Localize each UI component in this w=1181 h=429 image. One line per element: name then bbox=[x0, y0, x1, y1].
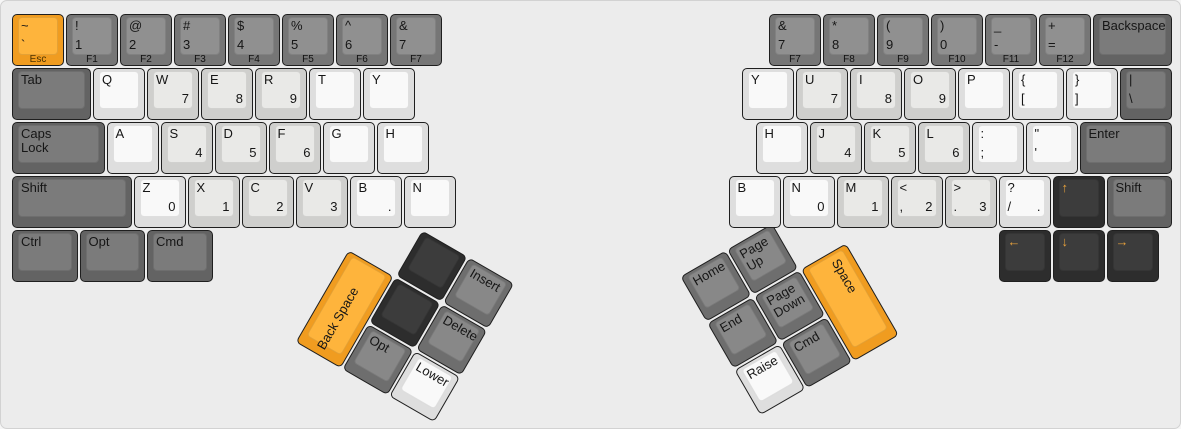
key-legend-period-[object Object]: 3 bbox=[979, 200, 986, 214]
key-f6[interactable]: ^6F6 bbox=[336, 14, 388, 66]
key-legend-f11-[object Object]: - bbox=[994, 38, 998, 52]
key-period[interactable]: >.3 bbox=[945, 176, 997, 228]
key-legend-f3-[object Object]: F3 bbox=[175, 54, 225, 65]
key-legend-slash-[object Object]: / bbox=[1008, 200, 1012, 214]
key-legend-j-[object Object]: J bbox=[819, 127, 826, 141]
key-legend-slash-[object Object]: . bbox=[1037, 200, 1041, 214]
key-legend-f7-left-[object Object]: F7 bbox=[391, 54, 441, 65]
key-f4[interactable]: $4F4 bbox=[228, 14, 280, 66]
key-esc[interactable]: ~`Esc bbox=[12, 14, 64, 66]
key-n-right[interactable]: N0 bbox=[783, 176, 835, 228]
key-legend-r-[object Object]: R bbox=[264, 73, 273, 87]
key-legend-w-[object Object]: W bbox=[156, 73, 168, 87]
key-legend-f3-[object Object]: # bbox=[183, 19, 190, 33]
key-legend-shift-left-[object Object]: Shift bbox=[21, 181, 47, 195]
key-b-left[interactable]: B. bbox=[350, 176, 402, 228]
key-o[interactable]: O9 bbox=[904, 68, 956, 120]
key-x[interactable]: X1 bbox=[188, 176, 240, 228]
key-legend-c-[object Object]: 2 bbox=[276, 200, 283, 214]
key-slash[interactable]: ?/. bbox=[999, 176, 1051, 228]
key-legend-n-right-[object Object]: 0 bbox=[817, 200, 824, 214]
key-legend-lbracket-[object Object]: [ bbox=[1021, 92, 1025, 106]
key-legend-f11-[object Object]: _ bbox=[994, 19, 1001, 33]
key-k[interactable]: K5 bbox=[864, 122, 916, 174]
key-legend-f6-[object Object]: ^ bbox=[345, 19, 351, 33]
key-legend-f2-[object Object]: F2 bbox=[121, 54, 171, 65]
key-legend-quote-[object Object]: " bbox=[1035, 127, 1040, 141]
key-f3[interactable]: #3F3 bbox=[174, 14, 226, 66]
key-legend-t-[object Object]: T bbox=[318, 73, 326, 87]
key-legend-f2-[object Object]: 2 bbox=[129, 38, 136, 52]
key-legend-f9-[object Object]: F9 bbox=[878, 54, 928, 65]
key-caps-lock[interactable]: Caps Lock bbox=[12, 122, 105, 174]
key-legend-f12-[object Object]: F12 bbox=[1040, 54, 1090, 65]
key-w[interactable]: W7 bbox=[147, 68, 199, 120]
key-legend-ctrl-[object Object]: Ctrl bbox=[21, 235, 41, 249]
key-legend-f7-left-[object Object]: & bbox=[399, 19, 408, 33]
key-f[interactable]: F6 bbox=[269, 122, 321, 174]
key-legend-f4-[object Object]: 4 bbox=[237, 38, 244, 52]
key-legend-m-[object Object]: M bbox=[846, 181, 857, 195]
key-legend-tab-[object Object]: Tab bbox=[21, 73, 42, 87]
key-legend-f10-[object Object]: F10 bbox=[932, 54, 982, 65]
key-legend-u-[object Object]: U bbox=[805, 73, 814, 87]
key-legend-f9-[object Object]: 9 bbox=[886, 38, 893, 52]
key-tab[interactable]: Tab bbox=[12, 68, 91, 120]
key-legend-esc-[object Object]: ~ bbox=[21, 19, 29, 33]
key-f5[interactable]: %5F5 bbox=[282, 14, 334, 66]
key-semicolon[interactable]: :; bbox=[972, 122, 1024, 174]
key-legend-x-[object Object]: 1 bbox=[222, 200, 229, 214]
key-legend-f7-right-[object Object]: F7 bbox=[770, 54, 820, 65]
key-arrow-down[interactable]: ↓ bbox=[1053, 230, 1105, 282]
key-legend-esc-[object Object]: Esc bbox=[13, 54, 63, 65]
key-f2[interactable]: @2F2 bbox=[120, 14, 172, 66]
key-legend-f10-[object Object]: ) bbox=[940, 19, 944, 33]
key-legend-caps-lock-[object Object]: Caps Lock bbox=[21, 127, 51, 155]
key-legend-comma-[object Object]: 2 bbox=[925, 200, 932, 214]
key-legend-f-[object Object]: F bbox=[278, 127, 286, 141]
key-lbracket[interactable]: {[ bbox=[1012, 68, 1064, 120]
key-legend-f12-[object Object]: = bbox=[1048, 38, 1056, 52]
key-legend-f6-[object Object]: 6 bbox=[345, 38, 352, 52]
key-legend-d-[object Object]: 5 bbox=[249, 146, 256, 160]
key-legend-v-[object Object]: V bbox=[305, 181, 314, 195]
key-s[interactable]: S4 bbox=[161, 122, 213, 174]
key-opt[interactable]: Opt bbox=[80, 230, 146, 282]
key-legend-z-[object Object]: 0 bbox=[168, 200, 175, 214]
key-legend-f4-[object Object]: $ bbox=[237, 19, 244, 33]
key-arrow-right[interactable]: → bbox=[1107, 230, 1159, 282]
key-legend-n-left-[object Object]: N bbox=[413, 181, 422, 195]
key-legend-l-[object Object]: 6 bbox=[952, 146, 959, 160]
key-legend-f7-right-[object Object]: 7 bbox=[778, 38, 785, 52]
key-legend-f5-[object Object]: F5 bbox=[283, 54, 333, 65]
key-legend-e-[object Object]: E bbox=[210, 73, 219, 87]
key-legend-q-[object Object]: Q bbox=[102, 73, 112, 87]
key-f12[interactable]: +=F12 bbox=[1039, 14, 1091, 66]
key-n-left[interactable]: N bbox=[404, 176, 456, 228]
key-legend-f9-[object Object]: ( bbox=[886, 19, 890, 33]
key-legend-k-[object Object]: K bbox=[873, 127, 882, 141]
key-legend-o-[object Object]: O bbox=[913, 73, 923, 87]
key-shift-right[interactable]: Shift bbox=[1107, 176, 1173, 228]
key-h-right[interactable]: H bbox=[756, 122, 808, 174]
key-g[interactable]: G bbox=[323, 122, 375, 174]
key-backslash[interactable]: |\ bbox=[1120, 68, 1172, 120]
key-legend-period-[object Object]: . bbox=[954, 200, 958, 214]
key-legend-comma-[object Object]: , bbox=[900, 200, 904, 214]
key-legend-f12-[object Object]: + bbox=[1048, 19, 1056, 33]
key-t[interactable]: T bbox=[309, 68, 361, 120]
key-legend-g-[object Object]: G bbox=[332, 127, 342, 141]
key-legend-k-[object Object]: 5 bbox=[898, 146, 905, 160]
key-legend-a-[object Object]: A bbox=[116, 127, 125, 141]
key-c[interactable]: C2 bbox=[242, 176, 294, 228]
keycap-surface bbox=[407, 236, 461, 289]
key-legend-d-[object Object]: D bbox=[224, 127, 233, 141]
key-rbracket[interactable]: }] bbox=[1066, 68, 1118, 120]
key-d[interactable]: D5 bbox=[215, 122, 267, 174]
key-legend-m-[object Object]: 1 bbox=[871, 200, 878, 214]
key-legend-semicolon-[object Object]: ; bbox=[981, 146, 985, 160]
key-legend-w-[object Object]: 7 bbox=[182, 92, 189, 106]
key-legend-opt-[object Object]: Opt bbox=[89, 235, 110, 249]
key-f8[interactable]: *8F8 bbox=[823, 14, 875, 66]
key-legend-shift-right-[object Object]: Shift bbox=[1116, 181, 1142, 195]
key-comma[interactable]: <,2 bbox=[891, 176, 943, 228]
key-legend-comma-[object Object]: < bbox=[900, 181, 908, 195]
key-a[interactable]: A bbox=[107, 122, 159, 174]
key-legend-f-[object Object]: 6 bbox=[303, 146, 310, 160]
key-legend-o-[object Object]: 9 bbox=[939, 92, 946, 106]
key-backspace[interactable]: Backspace bbox=[1093, 14, 1172, 66]
key-legend-f1-[object Object]: F1 bbox=[67, 54, 117, 65]
key-legend-j-[object Object]: 4 bbox=[844, 146, 851, 160]
key-legend-b-right-[object Object]: B bbox=[738, 181, 747, 195]
key-legend-s-[object Object]: 4 bbox=[195, 146, 202, 160]
key-legend-period-[object Object]: > bbox=[954, 181, 962, 195]
key-legend-l-[object Object]: L bbox=[927, 127, 934, 141]
key-b-right[interactable]: B bbox=[729, 176, 781, 228]
key-l[interactable]: L6 bbox=[918, 122, 970, 174]
key-legend-f4-[object Object]: F4 bbox=[229, 54, 279, 65]
key-e[interactable]: E8 bbox=[201, 68, 253, 120]
key-legend-f7-right-[object Object]: & bbox=[778, 19, 787, 33]
key-legend-f8-[object Object]: 8 bbox=[832, 38, 839, 52]
key-shift-left[interactable]: Shift bbox=[12, 176, 132, 228]
key-legend-f6-[object Object]: F6 bbox=[337, 54, 387, 65]
key-y-right[interactable]: Y bbox=[742, 68, 794, 120]
key-legend-n-right-[object Object]: N bbox=[792, 181, 801, 195]
key-legend-e-[object Object]: 8 bbox=[236, 92, 243, 106]
key-f11[interactable]: _-F11 bbox=[985, 14, 1037, 66]
key-i[interactable]: I8 bbox=[850, 68, 902, 120]
key-legend-f3-[object Object]: 3 bbox=[183, 38, 190, 52]
key-legend-semicolon-[object Object]: : bbox=[981, 127, 985, 141]
key-h-left[interactable]: H bbox=[377, 122, 429, 174]
key-legend-f1-[object Object]: ! bbox=[75, 19, 79, 33]
key-legend-f1-[object Object]: 1 bbox=[75, 38, 82, 52]
key-legend-f8-[object Object]: F8 bbox=[824, 54, 874, 65]
key-legend-v-[object Object]: 3 bbox=[330, 200, 337, 214]
key-legend-arrow-right-[object Object]: → bbox=[1116, 235, 1129, 249]
key-z[interactable]: Z0 bbox=[134, 176, 186, 228]
key-v[interactable]: V3 bbox=[296, 176, 348, 228]
key-legend-backslash-[object Object]: | bbox=[1129, 73, 1132, 87]
key-legend-f5-[object Object]: % bbox=[291, 19, 303, 33]
key-p[interactable]: P bbox=[958, 68, 1010, 120]
key-legend-f11-[object Object]: F11 bbox=[986, 54, 1036, 65]
key-legend-h-left-[object Object]: H bbox=[386, 127, 395, 141]
key-m[interactable]: M1 bbox=[837, 176, 889, 228]
key-legend-b-left-[object Object]: . bbox=[388, 200, 392, 214]
key-legend-quote-[object Object]: ' bbox=[1035, 146, 1037, 160]
key-legend-esc-[object Object]: ` bbox=[21, 38, 25, 52]
key-legend-b-left-[object Object]: B bbox=[359, 181, 368, 195]
key-legend-s-[object Object]: S bbox=[170, 127, 179, 141]
key-y-left[interactable]: Y bbox=[363, 68, 415, 120]
key-legend-arrow-left-[object Object]: ← bbox=[1008, 235, 1021, 249]
key-ctrl[interactable]: Ctrl bbox=[12, 230, 78, 282]
keyboard-canvas: Back SpaceInsertDeleteOptLowerHomePage U… bbox=[0, 0, 1181, 429]
key-legend-cmd-[object Object]: Cmd bbox=[156, 235, 183, 249]
key-legend-slash-[object Object]: ? bbox=[1008, 181, 1015, 195]
key-j[interactable]: J4 bbox=[810, 122, 862, 174]
key-legend-p-[object Object]: P bbox=[967, 73, 976, 87]
key-r[interactable]: R9 bbox=[255, 68, 307, 120]
key-f10[interactable]: )0F10 bbox=[931, 14, 983, 66]
key-legend-f5-[object Object]: 5 bbox=[291, 38, 298, 52]
key-legend-backspace-[object Object]: Backspace bbox=[1102, 19, 1166, 33]
key-legend-rbracket-[object Object]: ] bbox=[1075, 92, 1079, 106]
key-arrow-up[interactable]: ↑ bbox=[1053, 176, 1105, 228]
key-legend-f8-[object Object]: * bbox=[832, 19, 837, 33]
key-legend-x-[object Object]: X bbox=[197, 181, 206, 195]
key-quote[interactable]: "' bbox=[1026, 122, 1078, 174]
key-legend-z-[object Object]: Z bbox=[143, 181, 151, 195]
key-legend-y-right-[object Object]: Y bbox=[751, 73, 760, 87]
key-arrow-left[interactable]: ← bbox=[999, 230, 1051, 282]
key-f7-left[interactable]: &7F7 bbox=[390, 14, 442, 66]
key-legend-f7-left-[object Object]: 7 bbox=[399, 38, 406, 52]
key-f9[interactable]: (9F9 bbox=[877, 14, 929, 66]
key-u[interactable]: U7 bbox=[796, 68, 848, 120]
key-legend-rbracket-[object Object]: } bbox=[1075, 73, 1079, 87]
key-legend-f10-[object Object]: 0 bbox=[940, 38, 947, 52]
key-legend-u-[object Object]: 7 bbox=[831, 92, 838, 106]
key-legend-f2-[object Object]: @ bbox=[129, 19, 142, 33]
key-legend-r-[object Object]: 9 bbox=[290, 92, 297, 106]
key-legend-i-[object Object]: 8 bbox=[885, 92, 892, 106]
key-legend-h-right-[object Object]: H bbox=[765, 127, 774, 141]
key-legend-arrow-down-[object Object]: ↓ bbox=[1062, 235, 1069, 249]
key-q[interactable]: Q bbox=[93, 68, 145, 120]
key-legend-arrow-up-[object Object]: ↑ bbox=[1062, 181, 1069, 195]
key-legend-backslash-[object Object]: \ bbox=[1129, 92, 1133, 106]
key-legend-lbracket-[object Object]: { bbox=[1021, 73, 1025, 87]
key-legend-y-left-[object Object]: Y bbox=[372, 73, 381, 87]
key-f1[interactable]: !1F1 bbox=[66, 14, 118, 66]
key-cmd[interactable]: Cmd bbox=[147, 230, 213, 282]
key-f7-right[interactable]: &7F7 bbox=[769, 14, 821, 66]
key-legend-i-[object Object]: I bbox=[859, 73, 863, 87]
key-enter[interactable]: Enter bbox=[1080, 122, 1173, 174]
key-legend-c-[object Object]: C bbox=[251, 181, 260, 195]
key-legend-enter-[object Object]: Enter bbox=[1089, 127, 1120, 141]
